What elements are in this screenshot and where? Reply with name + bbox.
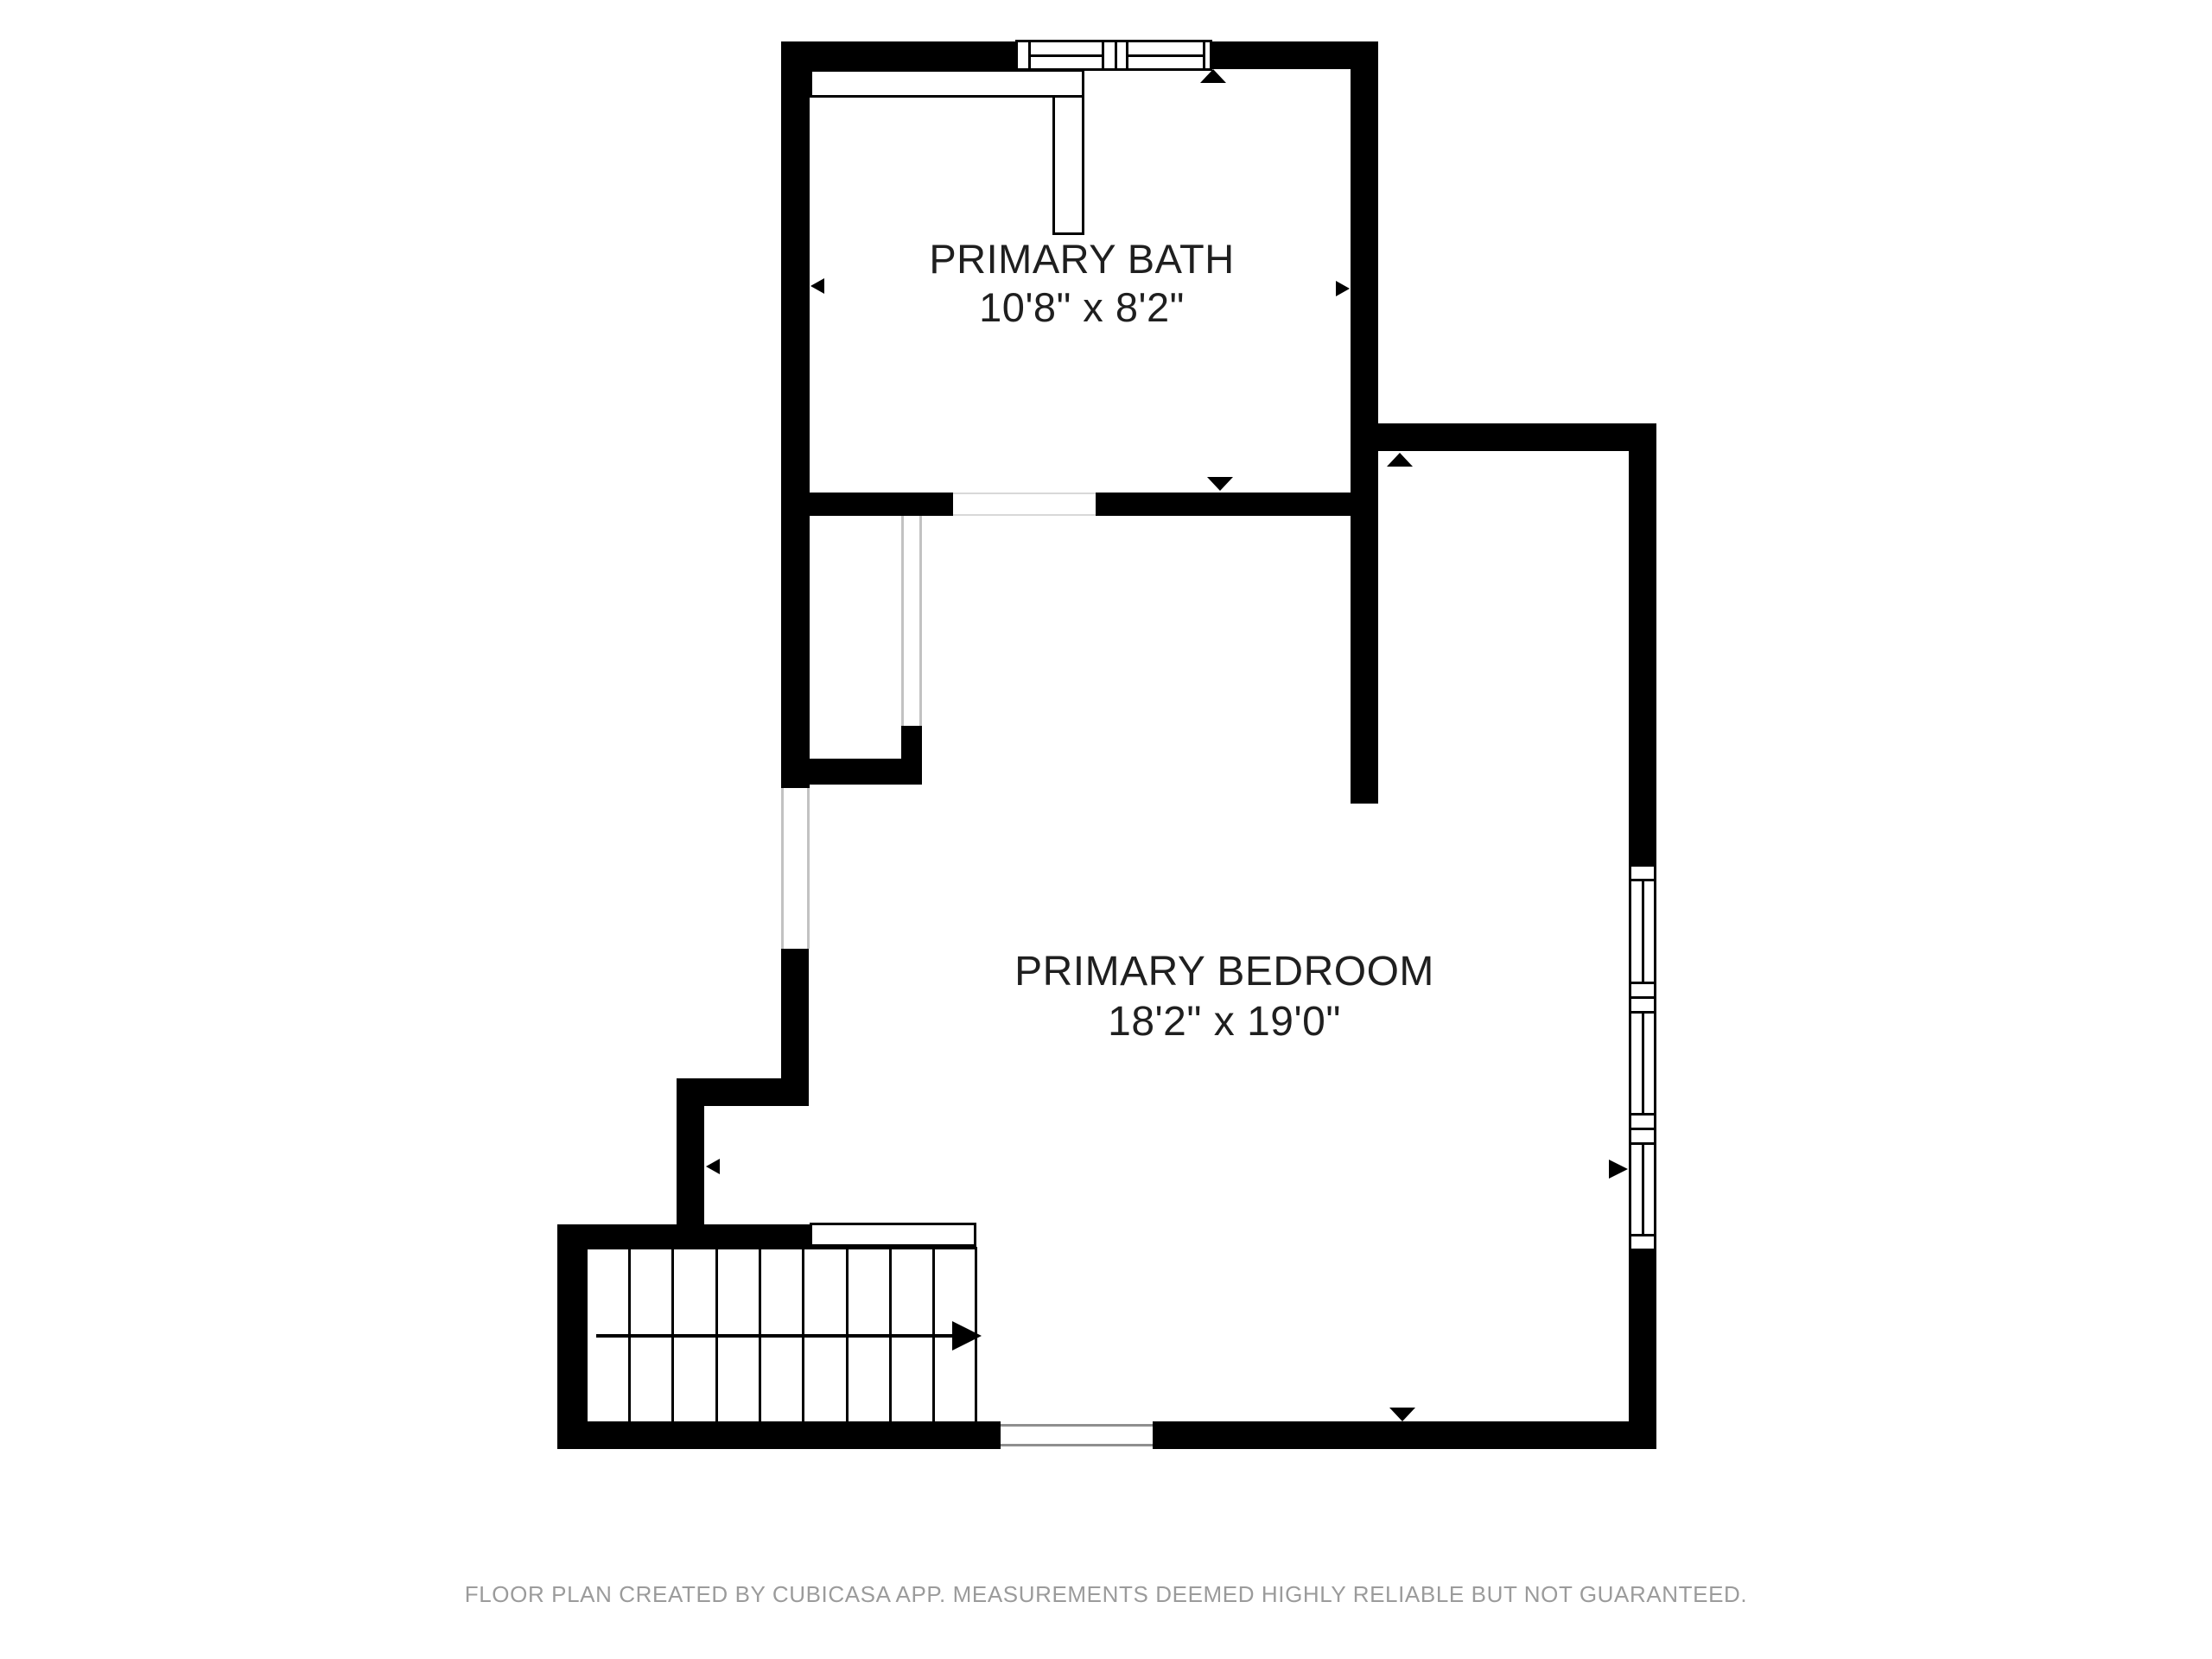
door-opening-left-wall bbox=[781, 788, 810, 949]
bath-counter bbox=[810, 69, 1084, 98]
room-label-primary-bedroom: PRIMARY BEDROOM 18'2" x 19'0" bbox=[879, 947, 1570, 1046]
arrow-right-bedroom-window bbox=[1609, 1160, 1628, 1179]
room-dimensions-primary-bath: 10'8" x 8'2" bbox=[823, 283, 1341, 332]
wall-bedroom-right-upper bbox=[1629, 423, 1656, 864]
arrow-down-bottom-wall bbox=[1389, 1408, 1415, 1421]
wall-bedroom-right-lower bbox=[1629, 1251, 1656, 1449]
wall-stairs-left bbox=[557, 1224, 585, 1449]
wall-bath-top-left-segment bbox=[781, 41, 1015, 69]
wall-bath-right-and-stub bbox=[1351, 41, 1378, 804]
stairs-direction-line bbox=[596, 1334, 952, 1338]
bath-window bbox=[1015, 40, 1212, 71]
window-frame-line bbox=[1631, 996, 1654, 999]
window-frame-line bbox=[1631, 1234, 1654, 1236]
window-glass-line bbox=[1642, 1142, 1644, 1234]
door-opening-closet bbox=[901, 516, 922, 726]
wall-closet-right-stub bbox=[901, 724, 922, 759]
room-label-primary-bath: PRIMARY BATH 10'8" x 8'2" bbox=[823, 235, 1341, 333]
wall-bedroom-top bbox=[1351, 423, 1656, 451]
wall-bath-left bbox=[781, 41, 810, 788]
window-frame-line bbox=[1115, 42, 1117, 68]
arrow-left-bedroom-wall bbox=[706, 1159, 720, 1174]
floor-plan-canvas: PRIMARY BATH 10'8" x 8'2" PRIMARY BEDROO… bbox=[0, 0, 2212, 1659]
wall-stairs-top bbox=[557, 1224, 810, 1247]
room-name-primary-bath: PRIMARY BATH bbox=[823, 235, 1341, 283]
stairs-direction-arrow bbox=[952, 1321, 982, 1351]
footer-disclaimer: FLOOR PLAN CREATED BY CUBICASA APP. MEAS… bbox=[0, 1581, 2212, 1608]
window-frame-line bbox=[1631, 1113, 1654, 1116]
bedroom-window-assembly bbox=[1629, 864, 1656, 1251]
wall-bottom-left bbox=[557, 1421, 1001, 1449]
wall-left-lower bbox=[677, 1106, 704, 1224]
wall-left-jog bbox=[677, 1078, 809, 1106]
arrow-down-bath-doorway bbox=[1207, 477, 1233, 491]
window-glass-line bbox=[1028, 54, 1104, 57]
window-glass-line bbox=[1642, 879, 1644, 982]
window-frame-line bbox=[1631, 1128, 1654, 1130]
window-glass-line bbox=[1642, 1011, 1644, 1113]
wall-closet-bottom bbox=[810, 759, 922, 785]
door-opening-bottom-wall bbox=[1001, 1424, 1153, 1446]
wall-bottom-right bbox=[1153, 1421, 1656, 1449]
room-name-primary-bedroom: PRIMARY BEDROOM bbox=[879, 947, 1570, 997]
arrow-up-bedroom-top-wall bbox=[1387, 453, 1413, 467]
room-dimensions-primary-bedroom: 18'2" x 19'0" bbox=[879, 997, 1570, 1047]
stairs-open-edge bbox=[810, 1223, 976, 1247]
bath-counter-return bbox=[1052, 95, 1084, 235]
door-opening-bath-bottom bbox=[953, 493, 1096, 516]
wall-bath-bottom-left bbox=[781, 493, 953, 516]
arrow-up-bath-window bbox=[1200, 69, 1226, 83]
wall-bath-bottom-right bbox=[1096, 493, 1378, 516]
window-glass-line bbox=[1126, 54, 1205, 57]
window-frame-line bbox=[1631, 982, 1654, 984]
